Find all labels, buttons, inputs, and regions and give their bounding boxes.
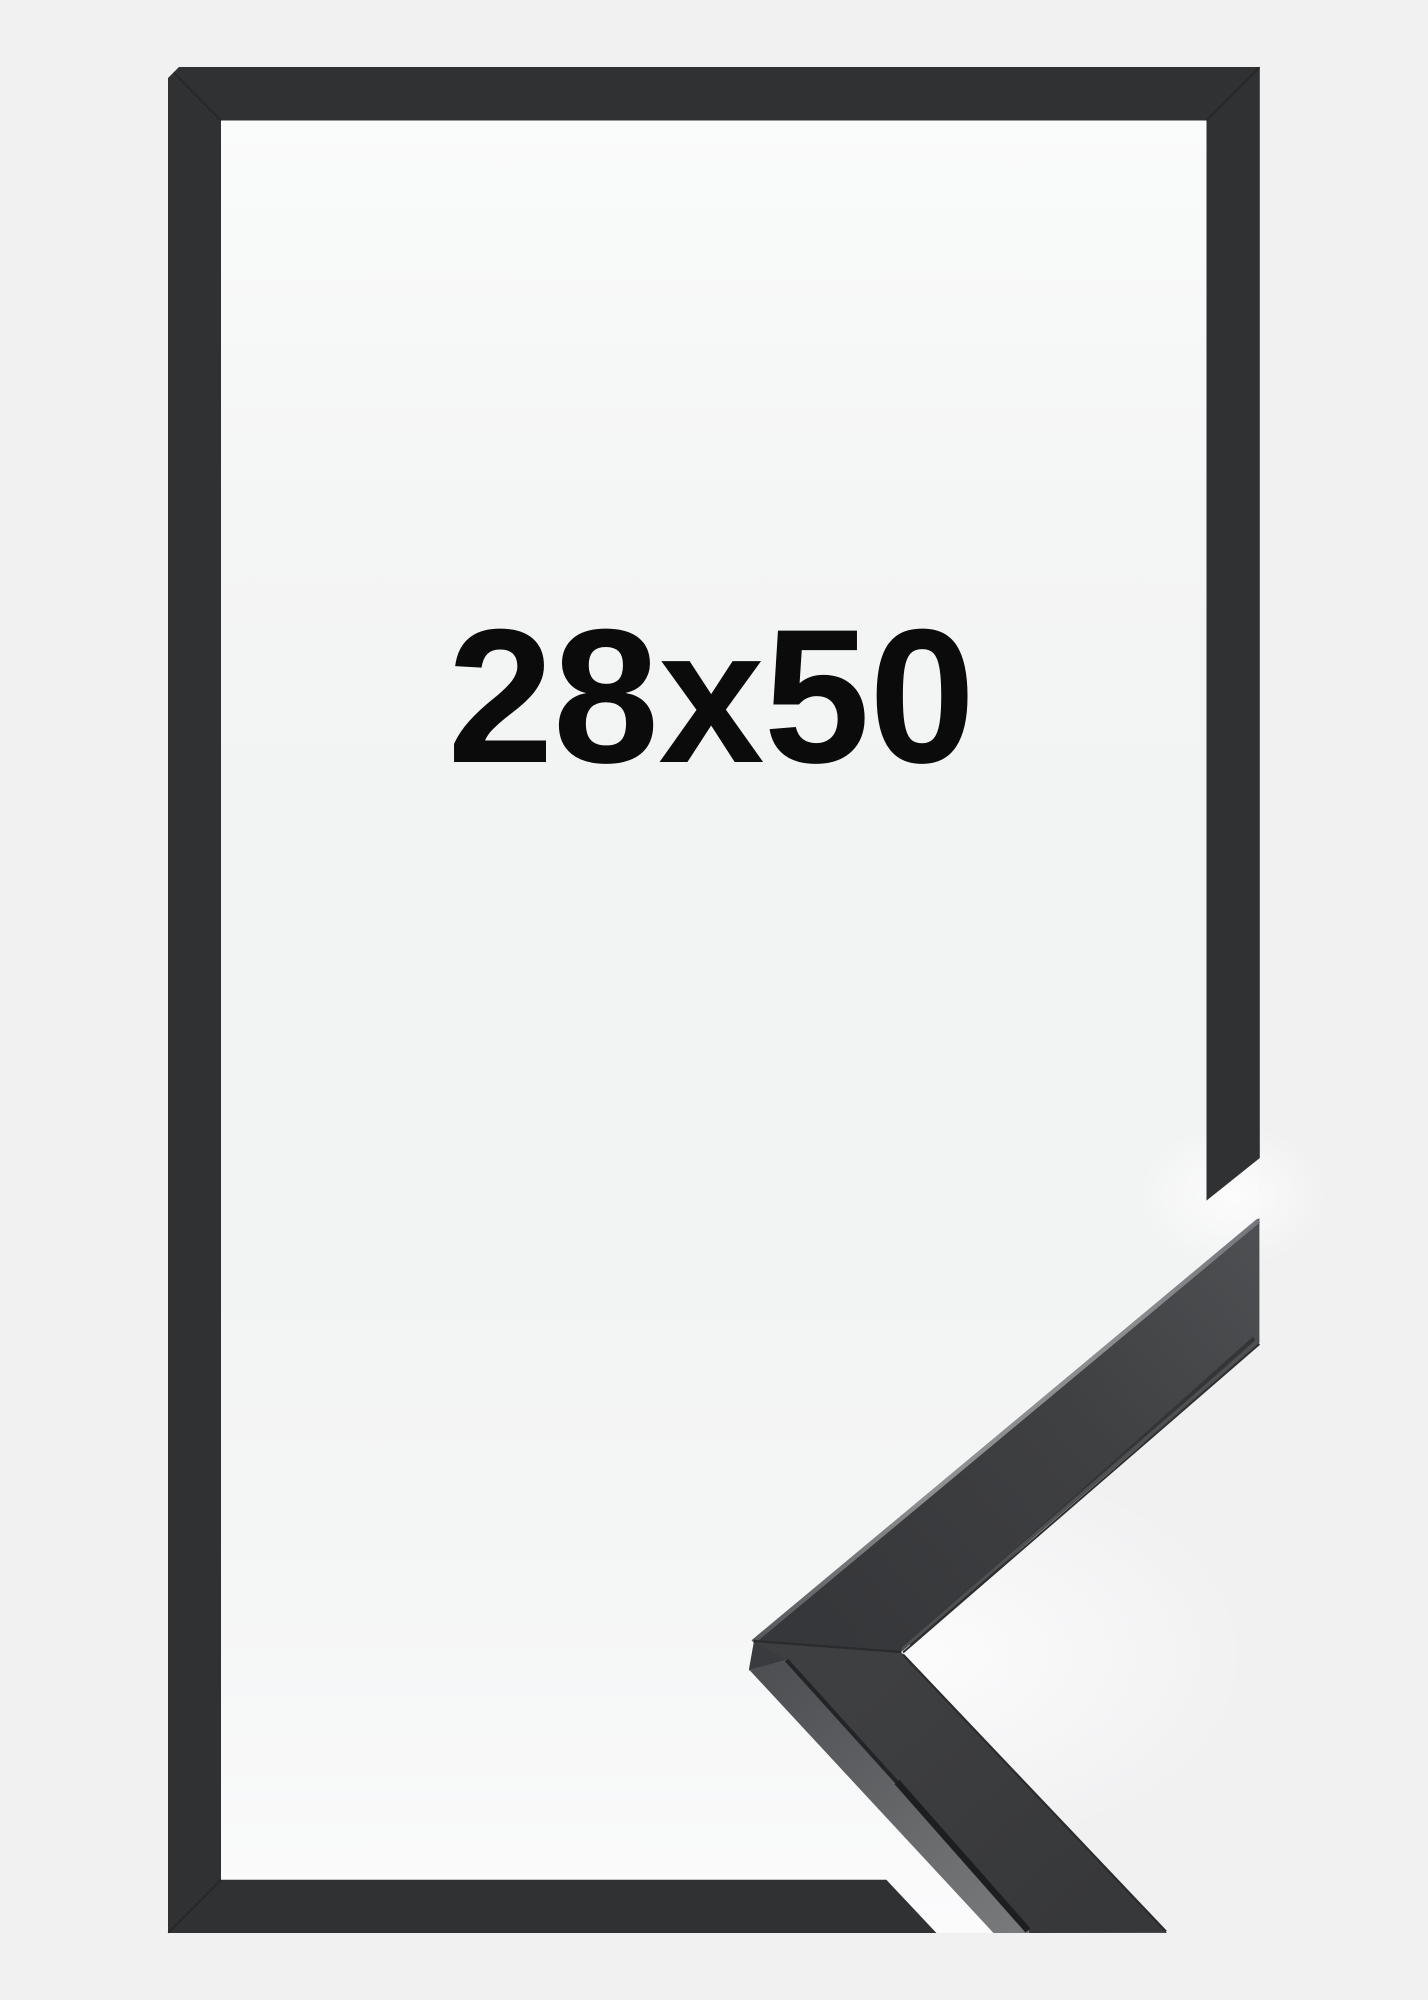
svg-text:28x50: 28x50 [447, 590, 974, 803]
